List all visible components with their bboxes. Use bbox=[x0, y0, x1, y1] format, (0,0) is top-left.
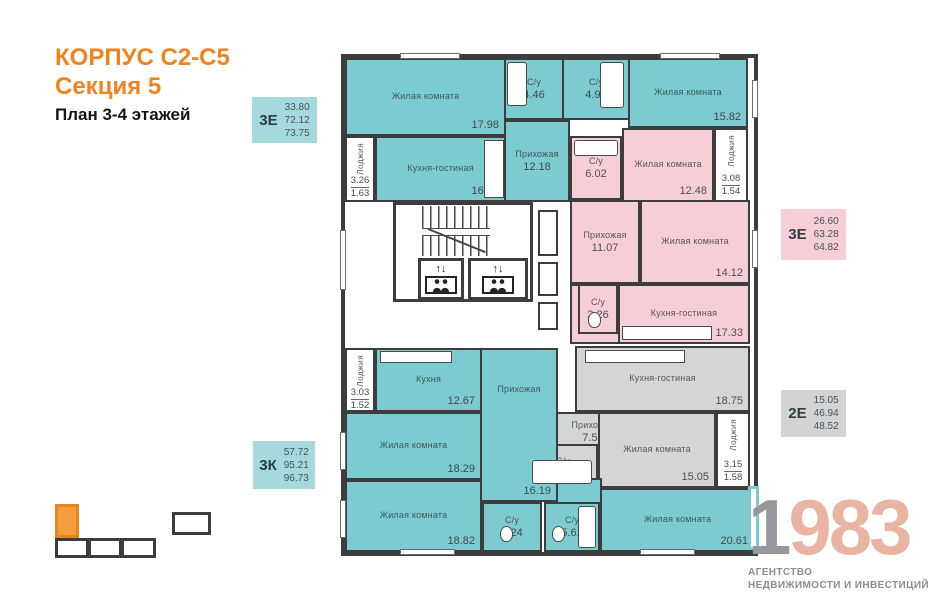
room-label: Жилая комната bbox=[380, 440, 448, 451]
room-label: Жилая комната bbox=[392, 91, 460, 102]
room-area: 6.02 bbox=[585, 168, 606, 180]
room-label: Жилая комната bbox=[623, 444, 691, 455]
elevator: ↑↓ bbox=[468, 258, 528, 300]
badge-3k-left: 3К 57.72 95.21 96.73 bbox=[253, 441, 315, 489]
room-label: С/у bbox=[591, 297, 605, 308]
building-title: КОРПУС С2-С5 bbox=[55, 44, 230, 73]
agency-logo: 1983 АГЕНТСТВО НЕДВИЖИМОСТИ И ИНВЕСТИЦИЙ bbox=[748, 492, 941, 592]
badge-value: 57.72 bbox=[284, 446, 309, 459]
badge-3e-right: 3Е 26.60 63.28 64.82 bbox=[781, 209, 846, 260]
badge-2e-right: 2Е 15.05 46.94 48.52 bbox=[781, 390, 846, 437]
window bbox=[340, 230, 346, 290]
logo-digit: 1 bbox=[748, 483, 788, 571]
room-area: 12.67 bbox=[447, 395, 475, 407]
utility-shaft bbox=[538, 302, 558, 330]
room-area: 15.82 bbox=[713, 111, 741, 123]
room-label: Жилая комната bbox=[634, 159, 702, 170]
loggia: Лоджия 3.15 1.58 bbox=[716, 412, 750, 488]
badge-label: 3К bbox=[259, 457, 277, 474]
room-label: Прихожая bbox=[515, 149, 558, 160]
room-zhilaya: Жилая комната 14.12 bbox=[640, 200, 750, 284]
loggia-label: Лоджия bbox=[355, 143, 365, 175]
logo-digits: 983 bbox=[788, 483, 909, 571]
bathtub-icon bbox=[578, 506, 596, 548]
utility-shaft bbox=[538, 210, 558, 256]
room-area: 18.82 bbox=[447, 535, 475, 547]
room-label: С/у bbox=[565, 515, 579, 526]
window bbox=[752, 80, 758, 118]
badge-3e-top: 3Е 33.80 72.12 73.75 bbox=[252, 97, 317, 143]
room-prihozhaya: Прихожая 12.18 bbox=[504, 120, 570, 202]
room-label: Кухня-гостиная bbox=[651, 308, 717, 319]
loggia-area-half: 1.63 bbox=[351, 187, 370, 200]
room-label: С/у bbox=[589, 156, 603, 167]
room-zhilaya: Жилая комната 18.29 bbox=[345, 412, 482, 480]
minimap-section bbox=[121, 538, 156, 558]
toilet-icon bbox=[588, 312, 601, 328]
minimap-section-current bbox=[55, 504, 79, 538]
elevator-arrows-icon: ↑↓ bbox=[493, 264, 504, 275]
badge-value: 15.05 bbox=[814, 394, 839, 407]
floor-title: План 3-4 этажей bbox=[55, 104, 230, 127]
room-label: Кухня-гостиная bbox=[407, 163, 473, 174]
room-area: 18.29 bbox=[447, 463, 475, 475]
room-zhilaya: Жилая комната 17.98 bbox=[345, 58, 506, 136]
room-label: Жилая комната bbox=[644, 514, 712, 525]
room-area: 17.33 bbox=[715, 327, 743, 339]
room-area: 11.07 bbox=[592, 242, 619, 254]
badge-value: 72.12 bbox=[285, 114, 310, 127]
badge-label: 2Е bbox=[788, 405, 806, 422]
room-label: Прихожая bbox=[497, 384, 540, 395]
badge-value: 26.60 bbox=[814, 215, 839, 228]
badge-value: 63.28 bbox=[814, 228, 839, 241]
kitchen-counter bbox=[585, 350, 685, 363]
room-area: 17.98 bbox=[471, 119, 499, 131]
section-title: Секция 5 bbox=[55, 73, 230, 102]
loggia-area-half: 1.58 bbox=[724, 471, 743, 484]
room-area: 14.12 bbox=[715, 267, 743, 279]
room-area: 15.05 bbox=[681, 471, 709, 483]
kitchen-counter bbox=[484, 140, 504, 198]
loggia: Лоджия 3.08 1.54 bbox=[714, 128, 748, 202]
loggia-label: Лоджия bbox=[728, 419, 738, 451]
window bbox=[340, 432, 346, 470]
room-label: Жилая комната bbox=[654, 87, 722, 98]
loggia-area-full: 3.15 bbox=[724, 459, 743, 471]
badge-label: 3Е bbox=[788, 226, 806, 243]
loggia: Лоджия 3.03 1.52 bbox=[345, 348, 375, 412]
room-label: С/у bbox=[527, 77, 541, 88]
loggia-area-half: 1.54 bbox=[722, 185, 741, 198]
elevator: ↑↓ bbox=[418, 258, 464, 300]
elevator-arrows-icon: ↑↓ bbox=[436, 264, 447, 275]
loggia-area-half: 1.52 bbox=[351, 399, 370, 412]
badge-value: 33.80 bbox=[285, 101, 310, 114]
room-zhilaya: Жилая комната 20.61 bbox=[600, 488, 755, 552]
elevator-people-icon bbox=[425, 276, 457, 294]
elevator-people-icon bbox=[482, 276, 514, 294]
loggia-label: Лоджия bbox=[355, 355, 365, 387]
loggia-area-full: 3.03 bbox=[351, 387, 370, 399]
badge-value: 48.52 bbox=[814, 420, 839, 433]
window bbox=[752, 230, 758, 268]
window bbox=[400, 53, 460, 59]
room-label: С/у bbox=[505, 515, 519, 526]
toilet-icon bbox=[500, 526, 513, 542]
room-label: Прихожая bbox=[583, 230, 626, 241]
minimap-section bbox=[172, 512, 211, 535]
logo-subtitle-2: НЕДВИЖИМОСТИ И ИНВЕСТИЦИЙ bbox=[748, 579, 941, 592]
loggia: Лоджия 3.26 1.63 bbox=[345, 136, 375, 202]
bathtub-icon bbox=[532, 460, 592, 484]
bathtub-icon bbox=[600, 62, 624, 108]
window bbox=[340, 500, 346, 538]
minimap-section bbox=[55, 538, 89, 558]
room-area: 12.18 bbox=[523, 161, 551, 173]
window bbox=[660, 53, 720, 59]
room-area: 16.19 bbox=[523, 485, 551, 497]
room-label: Кухня-гостиная bbox=[629, 373, 695, 384]
minimap-section bbox=[88, 538, 122, 558]
room-label: Жилая комната bbox=[661, 236, 729, 247]
room-area: 20.61 bbox=[720, 535, 748, 547]
badge-value: 95.21 bbox=[284, 459, 309, 472]
loggia-label: Лоджия bbox=[726, 135, 736, 167]
room-zhilaya: Жилая комната 18.82 bbox=[345, 480, 482, 552]
room-label: Жилая комната bbox=[380, 510, 448, 521]
kitchen-counter bbox=[622, 326, 712, 340]
room-label: Кухня bbox=[416, 374, 441, 385]
title-block: КОРПУС С2-С5 Секция 5 План 3-4 этажей bbox=[55, 44, 230, 127]
room-su: С/у 3.24 bbox=[482, 502, 542, 552]
badge-label: 3Е bbox=[259, 112, 277, 129]
window bbox=[400, 549, 455, 555]
kitchen-counter bbox=[380, 351, 452, 363]
badge-value: 64.82 bbox=[814, 241, 839, 254]
loggia-area-full: 3.26 bbox=[351, 175, 370, 187]
toilet-icon bbox=[552, 526, 565, 542]
bathtub-icon bbox=[507, 62, 527, 106]
room-zhilaya: Жилая комната 15.05 bbox=[598, 412, 716, 488]
badge-value: 96.73 bbox=[284, 472, 309, 485]
loggia-area-full: 3.08 bbox=[722, 173, 741, 185]
room-zhilaya: Жилая комната 12.48 bbox=[622, 128, 714, 202]
utility-shaft bbox=[538, 262, 558, 296]
badge-value: 46.94 bbox=[814, 407, 839, 420]
room-area: 12.48 bbox=[679, 185, 707, 197]
badge-value: 73.75 bbox=[285, 127, 310, 140]
room-prihozhaya: Прихожая 11.07 bbox=[570, 200, 640, 284]
room-zhilaya: Жилая комната 15.82 bbox=[628, 58, 748, 128]
window bbox=[640, 549, 695, 555]
room-area: 18.75 bbox=[715, 395, 743, 407]
bathtub-icon bbox=[574, 140, 618, 156]
floorplan-page: КОРПУС С2-С5 Секция 5 План 3-4 этажей 3Е… bbox=[0, 0, 941, 600]
